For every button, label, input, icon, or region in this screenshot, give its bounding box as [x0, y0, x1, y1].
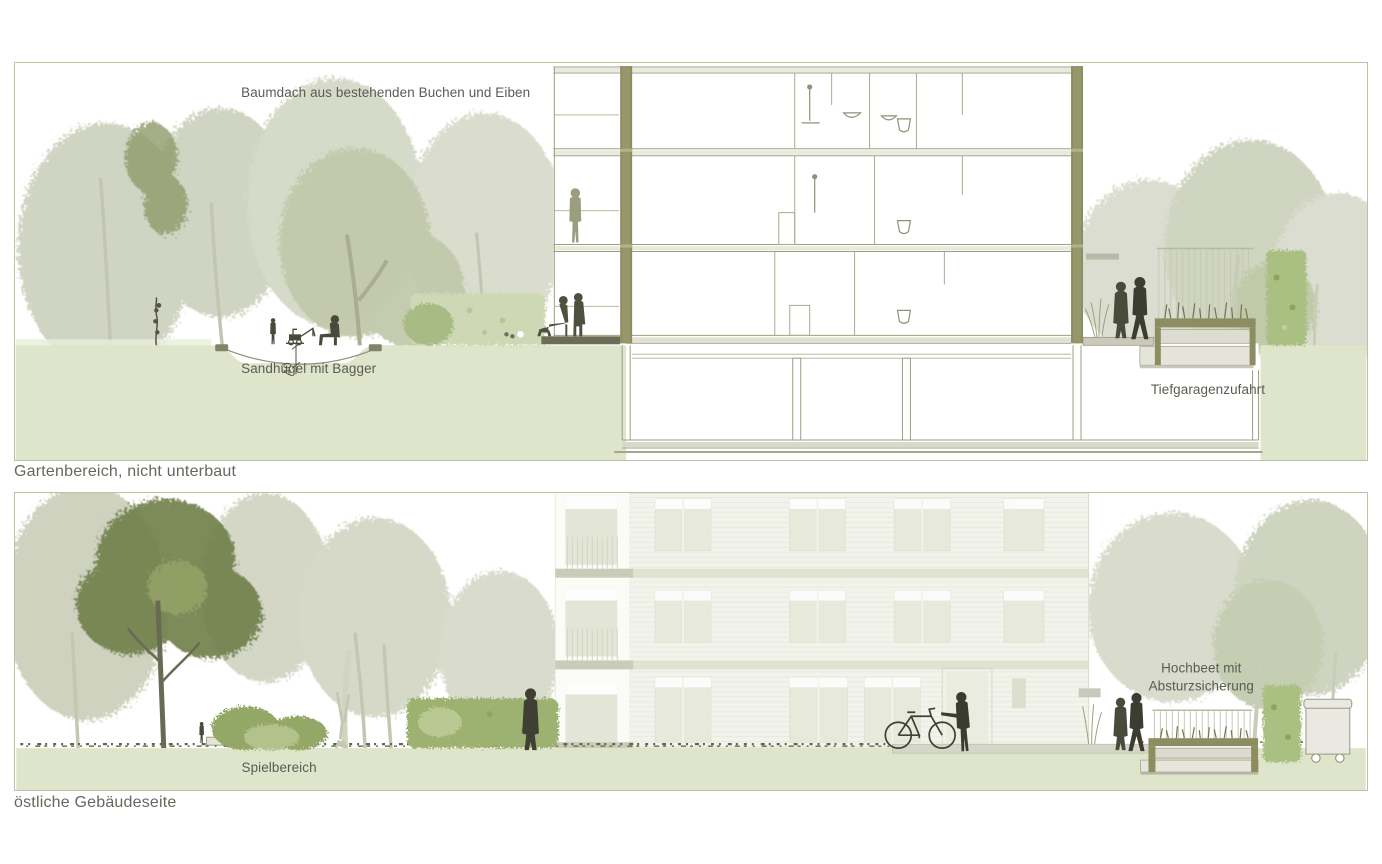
ground-garden-right	[1261, 345, 1367, 460]
garden-section-drawing: 40 Sandhügel mit Bagger	[15, 63, 1367, 460]
hedge-east	[1263, 685, 1301, 762]
canopy-label: Baumdach aus bestehenden Buchen und Eibe…	[241, 85, 530, 100]
caption-garden: Gartenbereich, nicht unterbaut	[14, 463, 236, 481]
entrance-walk	[892, 744, 1150, 753]
walking-man-east	[1128, 693, 1144, 751]
play-label: Spielbereich	[242, 760, 317, 775]
entry-canopy	[1086, 254, 1119, 260]
walkway-slab-right	[1083, 337, 1154, 345]
garage-label: Tiefgaragenzufahrt	[1151, 382, 1265, 397]
child-figure-sand	[270, 318, 276, 344]
sand-label: Sandhügel mit Bagger	[241, 361, 377, 376]
walking-woman-east	[1113, 698, 1127, 750]
hedge-right	[1267, 251, 1307, 346]
bed-plants	[1160, 726, 1248, 738]
building-facade	[555, 493, 1088, 748]
play-bushes	[212, 706, 328, 750]
waste-bin	[1304, 699, 1352, 762]
toy-digger	[286, 328, 315, 344]
small-window	[1012, 678, 1026, 708]
bed-label-line2: Absturzsicherung	[1149, 678, 1254, 693]
hedge-left	[404, 293, 546, 345]
bed-label-line1: Hochbeet mit	[1161, 660, 1242, 675]
bench-block	[1079, 688, 1101, 697]
raised-bed	[1140, 710, 1258, 774]
path-strip-left	[16, 339, 212, 345]
balcony-stack	[555, 493, 633, 748]
terrace-slab	[541, 336, 620, 344]
caption-east: östliche Gebäudeseite	[14, 794, 177, 812]
child-figure-play	[199, 722, 204, 743]
section-panel-garden: 40 Sandhügel mit Bagger	[14, 62, 1368, 461]
drawing-sheet: 40 Sandhügel mit Bagger	[0, 0, 1382, 864]
east-elevation-drawing: Spielbereich	[15, 493, 1367, 790]
section-panel-east: Spielbereich	[14, 492, 1368, 791]
